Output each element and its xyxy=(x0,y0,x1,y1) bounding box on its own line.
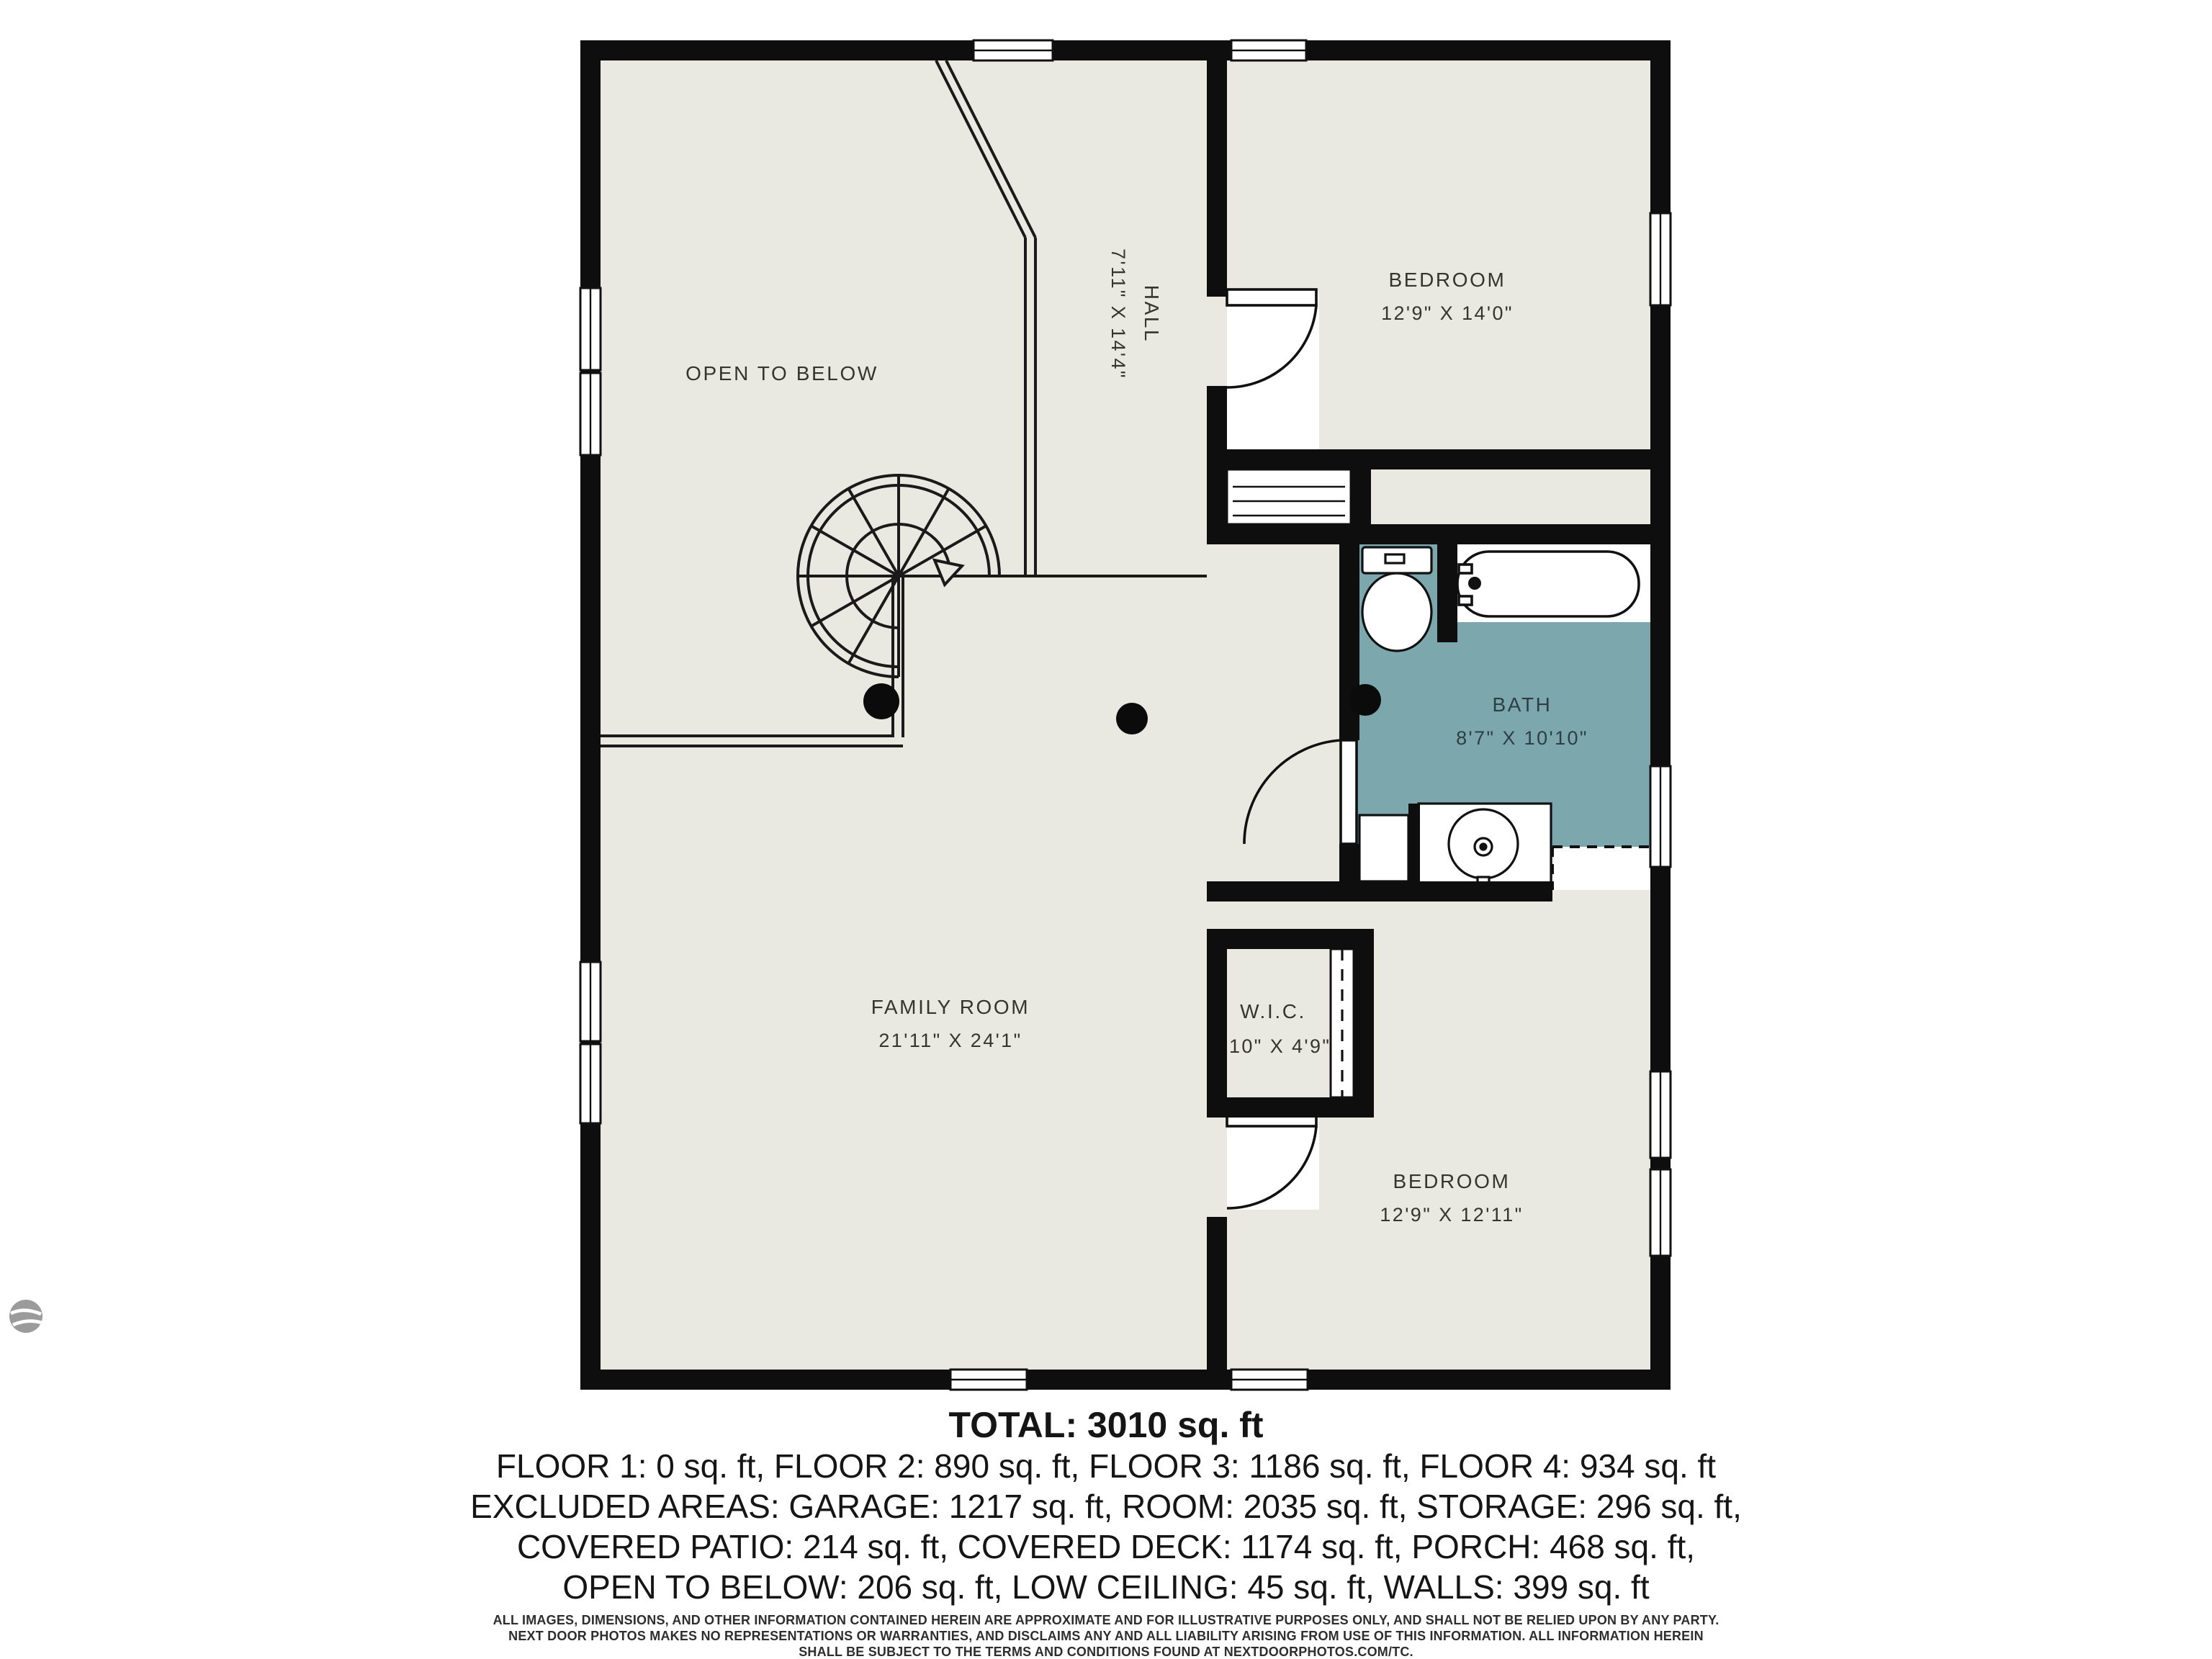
room-dimensions: 12'9" X 12'11" xyxy=(1380,1198,1523,1233)
floor-plan-page: OPEN TO BELOW HALL 7'11" X 14'4" BEDROOM… xyxy=(0,0,2212,1659)
disclaimer-line-2: NEXT DOOR PHOTOS MAKES NO REPRESENTATION… xyxy=(0,1629,2212,1645)
total-area-text: TOTAL: 3010 sq. ft xyxy=(0,1406,2212,1447)
room-name: BEDROOM xyxy=(1381,262,1514,297)
next-door-photos-logo-icon xyxy=(7,1298,45,1335)
room-name: BEDROOM xyxy=(1380,1164,1523,1198)
room-dimensions: 12'9" X 14'0" xyxy=(1381,297,1514,331)
room-name: OPEN TO BELOW xyxy=(685,356,878,390)
excluded-areas-text-2: COVERED PATIO: 214 sq. ft, COVERED DECK:… xyxy=(0,1528,2212,1567)
room-dimensions: 8'7" X 10'10" xyxy=(1456,721,1588,756)
room-name: BATH xyxy=(1456,687,1588,721)
low-ceiling-zone xyxy=(1552,847,1650,890)
column-dot xyxy=(863,683,899,719)
sliding-door-icon xyxy=(1331,949,1354,1097)
room-label-bath: BATH 8'7" X 10'10" xyxy=(1456,687,1588,756)
bathtub-icon xyxy=(1457,552,1639,616)
disclaimer-line-3: SHALL BE SUBJECT TO THE TERMS AND CONDIT… xyxy=(0,1645,2212,1659)
toilet-icon xyxy=(1362,547,1431,651)
room-label-wic: W.I.C. xyxy=(1240,999,1306,1022)
closet-shelves-icon xyxy=(1227,469,1351,524)
room-label-family-room: FAMILY ROOM 21'11" X 24'1" xyxy=(871,989,1030,1058)
column-dot xyxy=(1349,684,1381,716)
sink-vanity-icon xyxy=(1419,804,1551,890)
door-leaf xyxy=(1341,740,1357,844)
excluded-areas-text-1: EXCLUDED AREAS: GARAGE: 1217 sq. ft, ROO… xyxy=(0,1488,2212,1527)
column-dot xyxy=(1116,703,1148,734)
excluded-areas-text-3: OPEN TO BELOW: 206 sq. ft, LOW CEILING: … xyxy=(0,1568,2212,1607)
room-dimensions: 21'11" X 24'1" xyxy=(871,1024,1030,1058)
room-name: HALL xyxy=(1135,248,1169,379)
room-label-bedroom-bottom: BEDROOM 12'9" X 12'11" xyxy=(1380,1164,1523,1233)
disclaimer-line-1: ALL IMAGES, DIMENSIONS, AND OTHER INFORM… xyxy=(0,1613,2212,1629)
room-label-bedroom-top: BEDROOM 12'9" X 14'0" xyxy=(1381,262,1514,331)
room-dimensions-wic: 3'10" X 4'9" xyxy=(1227,1034,1331,1063)
linen-cabinet-icon xyxy=(1359,815,1408,881)
room-dimensions: 7'11" X 14'4" xyxy=(1100,248,1135,379)
floor-areas-text: FLOOR 1: 0 sq. ft, FLOOR 2: 890 sq. ft, … xyxy=(0,1447,2212,1486)
room-label-hall: HALL 7'11" X 14'4" xyxy=(1100,248,1169,379)
room-label-open-to-below: OPEN TO BELOW xyxy=(685,356,878,390)
room-name: FAMILY ROOM xyxy=(871,989,1030,1024)
door-leaf xyxy=(1227,289,1316,305)
